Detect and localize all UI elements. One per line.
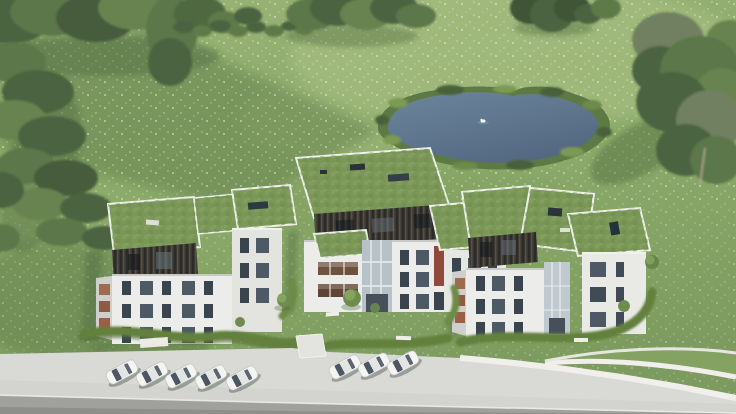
skylight <box>388 173 409 181</box>
roof-vent <box>560 228 570 232</box>
architectural-rendering <box>0 0 736 414</box>
entrance-glazing <box>544 262 570 336</box>
building-right <box>452 186 650 338</box>
skylight <box>248 201 268 209</box>
walkway <box>296 334 326 358</box>
render-viewport <box>0 0 736 414</box>
window-grid <box>476 276 523 338</box>
warm-window-strip <box>434 246 444 286</box>
warm-windows <box>99 284 110 329</box>
skylight <box>548 208 563 217</box>
tree-cluster-topcenter <box>286 0 436 30</box>
skylight <box>350 163 365 170</box>
building-left <box>96 185 296 344</box>
entrance-glazing <box>362 240 392 312</box>
